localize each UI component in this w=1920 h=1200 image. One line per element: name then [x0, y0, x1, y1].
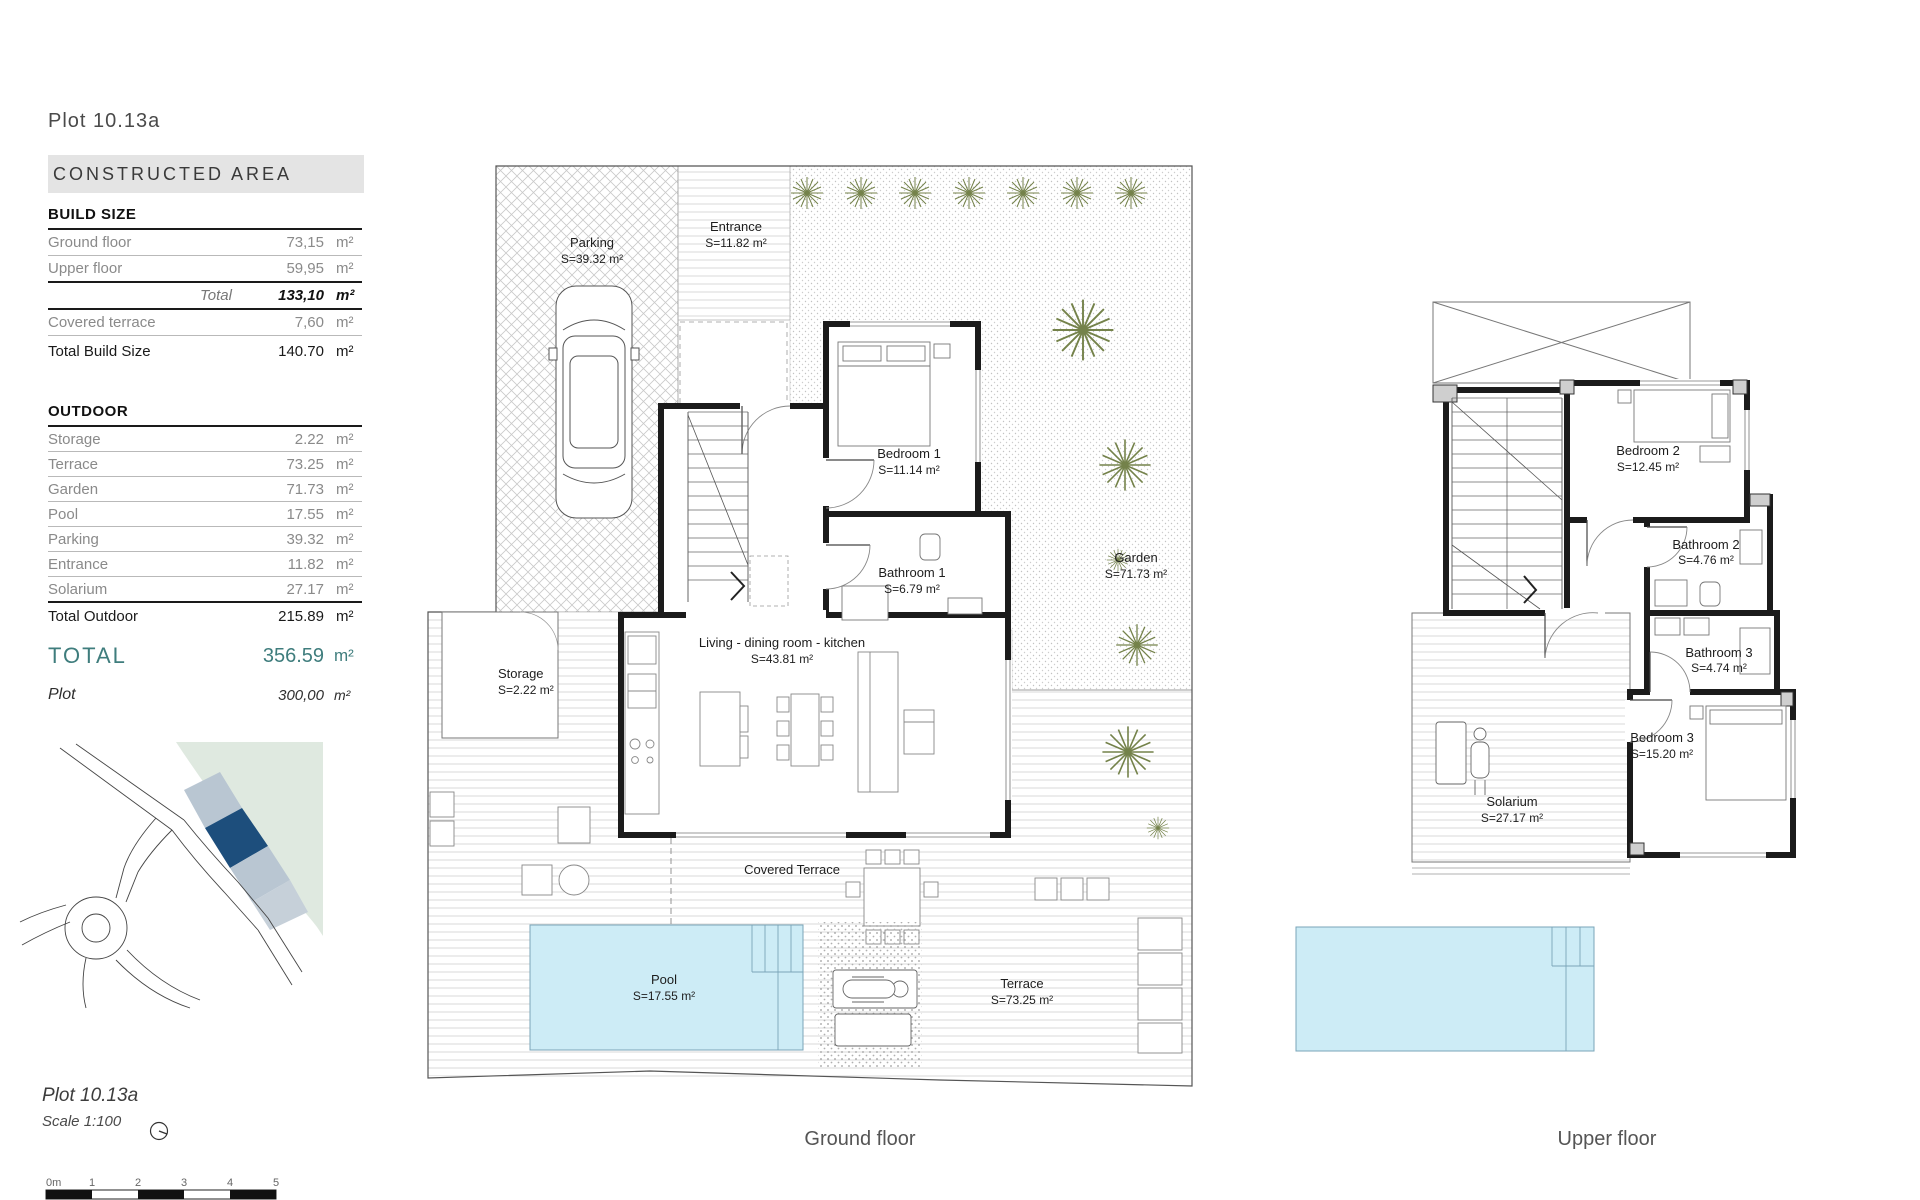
table-row: Ground floor 73,15 m²	[48, 230, 362, 256]
room-label-terrace: Terrace	[1000, 976, 1043, 991]
room-label-entrance: Entrance	[710, 219, 762, 234]
outdoor-title: OUTDOOR	[48, 403, 362, 427]
section-header: CONSTRUCTED AREA	[48, 155, 364, 193]
pool-shape-upper	[1296, 927, 1594, 1051]
room-label-solarium: Solarium	[1486, 794, 1537, 809]
scale-tick: 3	[181, 1177, 187, 1189]
table-row: Parking 39.32 m²	[48, 527, 362, 552]
plot-size-row: Plot 300,00 m²	[48, 686, 362, 704]
table-row: Pool 17.55 m²	[48, 502, 362, 527]
pool-shape	[530, 925, 803, 1050]
table-row: Storage 2.22 m²	[48, 427, 362, 452]
footer-plot-title: Plot 10.13a	[42, 1085, 138, 1107]
room-label-pool: Pool	[651, 972, 677, 987]
table-row: Garden 71.73 m²	[48, 477, 362, 502]
table-row: Terrace 73.25 m²	[48, 452, 362, 477]
build-size-title: BUILD SIZE	[48, 206, 362, 230]
compass-icon	[148, 1120, 172, 1144]
plan-sheet: Plot 10.13a CONSTRUCTED AREA BUILD SIZE …	[0, 0, 1920, 1200]
ground-floor-caption: Ground floor	[804, 1128, 915, 1151]
total-build-size-row: Total Build Size 140.70 m²	[48, 336, 362, 366]
build-total-row: Total 133,10 m²	[48, 283, 362, 310]
room-area-bathroom2: S=4.76 m²	[1678, 553, 1734, 567]
room-area-parking: S=39.32 m²	[561, 252, 623, 266]
page-title: Plot 10.13a	[48, 110, 160, 133]
room-label-bathroom2: Bathroom 2	[1672, 537, 1739, 552]
room-label-bedroom1: Bedroom 1	[877, 446, 941, 461]
room-label-covered-terrace: Covered Terrace	[744, 862, 840, 877]
ground-floor-plan: Parking S=39.32 m² Entrance S=11.82 m² G…	[410, 155, 1210, 1100]
room-label-bedroom2: Bedroom 2	[1616, 443, 1680, 458]
scale-label: Scale 1:100	[42, 1113, 121, 1130]
room-label-storage: Storage	[498, 666, 544, 681]
room-area-bedroom3: S=15.20 m²	[1631, 747, 1693, 761]
scale-tick: 0m	[46, 1177, 61, 1189]
table-row: Upper floor 59,95 m²	[48, 256, 362, 283]
room-area-storage: S=2.22 m²	[498, 683, 554, 697]
room-label-parking: Parking	[570, 235, 614, 250]
room-area-bathroom3: S=4.74 m²	[1691, 661, 1747, 675]
scale-tick: 5	[273, 1177, 279, 1189]
room-area-bedroom2: S=12.45 m²	[1617, 460, 1679, 474]
room-area-pool: S=17.55 m²	[633, 989, 695, 1003]
upper-floor-plan: Bedroom 2 S=12.45 m² Bathroom 2 S=4.76 m…	[1280, 290, 1810, 1065]
table-row: Solarium 27.17 m²	[48, 577, 362, 603]
room-label-bathroom1: Bathroom 1	[878, 565, 945, 580]
scale-bar: 0m 1 2 3 4 5	[38, 1172, 288, 1200]
car-icon	[549, 286, 639, 518]
room-label-living: Living - dining room - kitchen	[699, 635, 865, 650]
upper-floor-caption: Upper floor	[1558, 1128, 1657, 1151]
build-size-table: BUILD SIZE Ground floor 73,15 m² Upper f…	[48, 206, 362, 366]
site-map	[15, 742, 325, 1012]
room-area-living: S=43.81 m²	[751, 652, 813, 666]
roof-void	[1433, 302, 1690, 383]
table-row: Entrance 11.82 m²	[48, 552, 362, 577]
room-area-bedroom1: S=11.14 m²	[878, 463, 939, 477]
room-label-bathroom3: Bathroom 3	[1685, 645, 1752, 660]
room-area-solarium: S=27.17 m²	[1481, 811, 1543, 825]
room-area-terrace: S=73.25 m²	[991, 993, 1053, 1007]
sun-lounger	[833, 970, 917, 1046]
total-outdoor-row: Total Outdoor 215.89 m²	[48, 603, 362, 629]
dining-set	[777, 694, 833, 766]
table-row: Covered terrace 7,60 m²	[48, 310, 362, 336]
room-label-garden: Garden	[1114, 550, 1157, 565]
room-label-bedroom3: Bedroom 3	[1630, 730, 1694, 745]
outdoor-table: OUTDOOR Storage 2.22 m² Terrace 73.25 m²…	[48, 403, 362, 629]
room-area-entrance: S=11.82 m²	[705, 236, 766, 250]
scale-tick: 4	[227, 1177, 233, 1189]
scale-tick: 1	[89, 1177, 95, 1189]
scale-tick: 2	[135, 1177, 141, 1189]
grand-total-row: TOTAL 356.59 m²	[48, 643, 362, 669]
entrance-court	[680, 322, 787, 404]
room-area-bathroom1: S=6.79 m²	[884, 582, 940, 596]
room-area-garden: S=71.73 m²	[1105, 567, 1167, 581]
